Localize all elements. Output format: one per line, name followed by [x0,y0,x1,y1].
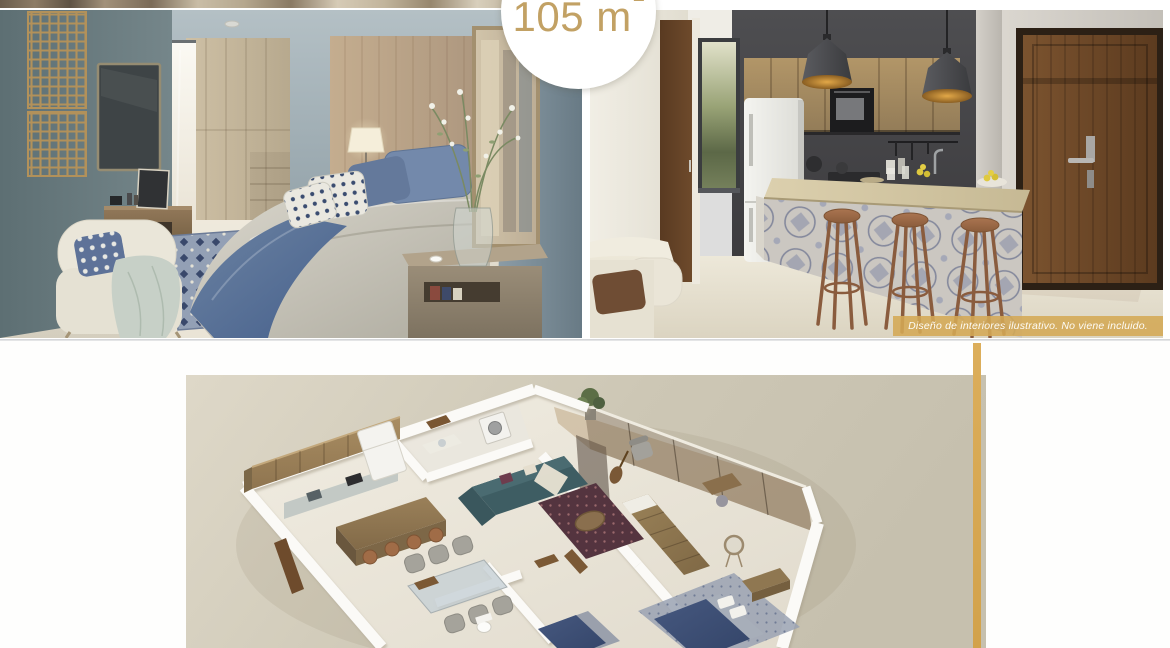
kitchen-render-art [590,10,1163,338]
entry-door [1016,28,1163,290]
kitchen-render-photo: Diseño de interiores ilustrativo. No vie… [590,10,1163,338]
top-photo-sliver [0,0,582,8]
ceiling-light [225,21,239,27]
kitchen-window [698,40,740,193]
gold-accent-stripe [973,343,981,648]
area-value: 105 m2 [501,0,656,38]
bedroom-render-art [0,10,582,338]
floorplan-art [186,375,986,648]
gold-lattice-panels [28,12,86,176]
disclaimer-text: Diseño de interiores ilustrativo. No vie… [908,320,1148,332]
built-in-microwave [830,88,874,132]
bedroom-render-photo [0,10,582,338]
isometric-floorplan [186,375,986,648]
wall-tv [98,64,160,170]
real-estate-flyer: Diseño de interiores ilustrativo. No vie… [0,0,1170,648]
interior-disclaimer-banner: Diseño de interiores ilustrativo. No vie… [893,316,1163,336]
area-number: 105 m [513,0,632,40]
armchair [56,220,182,338]
wardrobe-closet [186,38,290,220]
area-superscript: 2 [633,0,646,6]
floorplan-section [0,341,1170,648]
